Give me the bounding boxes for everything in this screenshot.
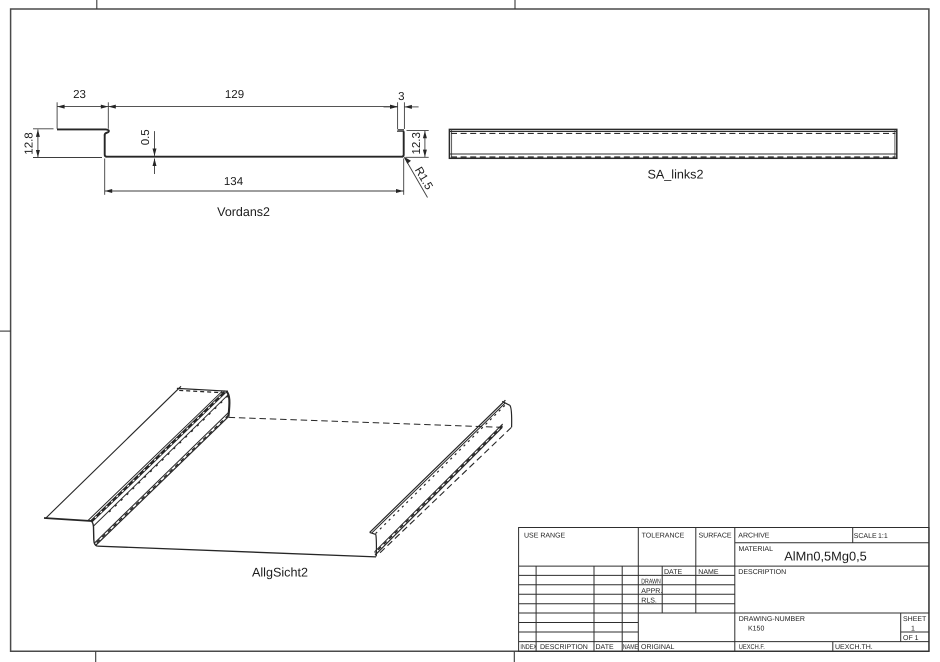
svg-text:OF 1: OF 1 bbox=[903, 635, 919, 642]
svg-text:134: 134 bbox=[224, 176, 244, 188]
svg-text:1: 1 bbox=[911, 626, 915, 633]
svg-text:SURFACE: SURFACE bbox=[699, 533, 732, 540]
svg-text:3: 3 bbox=[398, 91, 404, 103]
svg-text:12.8: 12.8 bbox=[23, 132, 35, 154]
svg-text:DESCRIPTION: DESCRIPTION bbox=[738, 569, 786, 576]
svg-text:USE RANGE: USE RANGE bbox=[524, 533, 566, 540]
svg-text:Vordans2: Vordans2 bbox=[217, 205, 270, 219]
svg-text:NAME: NAME bbox=[623, 644, 639, 651]
svg-text:129: 129 bbox=[225, 89, 244, 101]
svg-text:AllgSicht2: AllgSicht2 bbox=[252, 565, 308, 579]
svg-text:UEXCH.TH.: UEXCH.TH. bbox=[835, 644, 873, 651]
svg-text:DRAWING-NUMBER: DRAWING-NUMBER bbox=[739, 616, 805, 623]
svg-text:DATE: DATE bbox=[596, 644, 614, 651]
svg-text:TOLERANCE: TOLERANCE bbox=[642, 533, 685, 540]
svg-text:K150: K150 bbox=[748, 626, 764, 633]
svg-text:APPR.: APPR. bbox=[641, 588, 662, 595]
svg-text:RLS.: RLS. bbox=[641, 598, 657, 605]
svg-text:ORIGINAL: ORIGINAL bbox=[641, 644, 675, 651]
svg-text:SHEET: SHEET bbox=[903, 616, 927, 623]
svg-text:12.3: 12.3 bbox=[411, 132, 423, 154]
svg-text:23: 23 bbox=[73, 89, 86, 101]
svg-text:1:1: 1:1 bbox=[878, 533, 888, 540]
svg-text:UEXCH.F.: UEXCH.F. bbox=[739, 644, 765, 651]
svg-text:DESCRIPTION: DESCRIPTION bbox=[540, 644, 588, 651]
svg-text:MATERIAL: MATERIAL bbox=[739, 546, 774, 553]
svg-text:NAME: NAME bbox=[698, 569, 719, 576]
svg-text:SCALE: SCALE bbox=[854, 533, 877, 540]
svg-text:AlMn0,5Mg0,5: AlMn0,5Mg0,5 bbox=[784, 549, 867, 564]
svg-text:DRAWN: DRAWN bbox=[641, 579, 661, 586]
svg-text:DATE: DATE bbox=[664, 569, 682, 576]
svg-text:ARCHIVE: ARCHIVE bbox=[738, 533, 769, 540]
svg-text:SA_links2: SA_links2 bbox=[647, 167, 703, 181]
svg-text:INDEX: INDEX bbox=[520, 644, 537, 651]
svg-text:0.5: 0.5 bbox=[140, 129, 152, 145]
